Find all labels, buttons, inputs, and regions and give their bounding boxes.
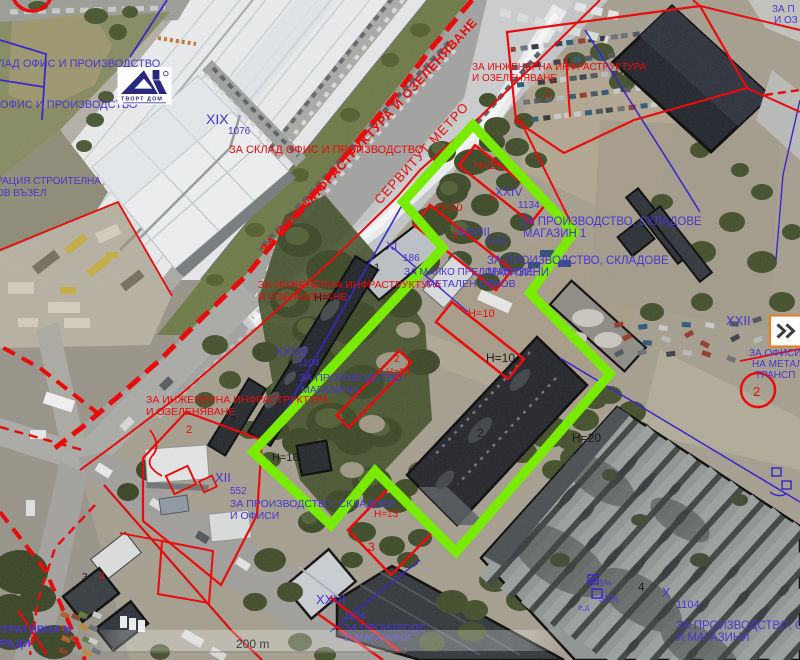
- svg-text:Н=10: Н=10: [486, 351, 515, 365]
- svg-text:XXVIII: XXVIII: [456, 225, 490, 239]
- svg-text:1: 1: [374, 262, 380, 274]
- svg-text:И ОЗЕЛЕНЯВАНЕ: И ОЗЕЛЕНЯВАНЕ: [146, 406, 235, 418]
- svg-text:ОВ ВЪЗЕЛ: ОВ ВЪЗЕЛ: [0, 188, 47, 199]
- svg-text:МАГАЗИНИ: МАГАЗИНИ: [487, 267, 549, 279]
- svg-text:XXIV: XXIV: [495, 185, 522, 199]
- svg-text:186: 186: [403, 253, 420, 264]
- svg-text:2: 2: [394, 354, 400, 365]
- svg-text:2: 2: [186, 424, 192, 436]
- svg-text:Н=20: Н=20: [572, 431, 601, 445]
- svg-text:ОФИС И ПРОИЗВОДСТВО: ОФИС И ПРОИЗВОДСТВО: [0, 99, 138, 111]
- svg-text:1104: 1104: [298, 358, 320, 369]
- svg-text:Н=8: Н=8: [314, 292, 335, 304]
- svg-text:ТВОРТ ДОМ: ТВОРТ ДОМ: [121, 97, 163, 103]
- svg-text:МАГАЗИН 1: МАГАЗИН 1: [523, 228, 586, 240]
- svg-text:1076: 1076: [228, 126, 251, 137]
- svg-text:XXII: XXII: [726, 313, 751, 328]
- svg-text:XII: XII: [215, 470, 231, 485]
- svg-text:3: 3: [489, 192, 495, 203]
- svg-text:3: 3: [368, 540, 375, 554]
- svg-text:Н=13: Н=13: [374, 509, 399, 520]
- svg-text:552: 552: [230, 486, 247, 497]
- svg-text:МЕТАЛЕН ОБКОВ: МЕТАЛЕН ОБКОВ: [426, 278, 516, 290]
- svg-text:XXVII: XXVII: [275, 345, 307, 359]
- svg-text:1: 1: [516, 114, 522, 125]
- svg-text:XXVI: XXVI: [316, 592, 346, 607]
- svg-text:ЗА ИНЖЕНЕРНА ИНФРАСТРУКТУРА: ЗА ИНЖЕНЕРНА ИНФРАСТРУКТУРА: [258, 279, 441, 291]
- svg-text:2: 2: [230, 415, 236, 426]
- svg-text:4: 4: [638, 580, 645, 594]
- svg-text:Н=10: Н=10: [386, 367, 411, 378]
- svg-text:ЗА ПРОИЗВОДСТВО, СКЛАДОВЕ: ЗА ПРОИЗВОДСТВО, СКЛАДОВЕ: [520, 216, 702, 228]
- svg-text:3: 3: [99, 571, 105, 582]
- svg-text:Н=10: Н=10: [436, 202, 463, 214]
- svg-text:1104: 1104: [676, 599, 700, 611]
- svg-text:ЗА ИНЖЕНЕРНА ИНФРАСТРУКТУРА: ЗА ИНЖЕНЕРНА ИНФРАСТРУКТУРА: [472, 62, 647, 73]
- svg-text:НА МЕТАЛ: НА МЕТАЛ: [752, 359, 800, 370]
- svg-text:ЗА ОФИСИ: ЗА ОФИСИ: [749, 348, 800, 359]
- svg-text:ЗА П: ЗА П: [772, 4, 795, 15]
- svg-text:5%: 5%: [600, 579, 612, 588]
- svg-text:ЗА ПРОИЗВОДСТВО, СКЛАДОВЕ: ЗА ПРОИЗВОДСТВО, СКЛАДОВЕ: [230, 498, 396, 510]
- svg-text:3: 3: [82, 572, 88, 583]
- svg-text:X: X: [662, 585, 671, 600]
- svg-text:Н=16: Н=16: [272, 452, 299, 464]
- svg-text:МАГАЗИНИ: МАГАЗИНИ: [301, 384, 358, 396]
- svg-text:2: 2: [753, 384, 760, 399]
- svg-text:ГРАДИ: ГРАДИ: [0, 638, 31, 650]
- svg-text:XIX: XIX: [206, 111, 229, 127]
- svg-text:3: 3: [452, 231, 458, 242]
- svg-text:И МАГАЗИНИ: И МАГАЗИНИ: [676, 632, 750, 644]
- svg-text:ЗА СКЛАД ОФИС И ПРОИЗВОДСТВО: ЗА СКЛАД ОФИС И ПРОИЗВОДСТВО: [229, 144, 424, 156]
- svg-text:1: 1: [545, 89, 551, 100]
- svg-text:1134: 1134: [518, 200, 540, 211]
- svg-text:И ОЗ: И ОЗ: [774, 15, 798, 26]
- svg-text:1104: 1104: [344, 611, 366, 622]
- svg-text:И ОЗЕЛЕНЯВАНЕ: И ОЗЕЛЕНЯВАНЕ: [472, 73, 557, 84]
- svg-text:2: 2: [477, 426, 484, 440]
- svg-text:Н=10: Н=10: [474, 160, 501, 172]
- svg-text:XI: XI: [386, 239, 397, 253]
- svg-text:ЗА ПРОИЗВОДСТВО, СКЛАДОВЕ: ЗА ПРОИЗВОДСТВО, СКЛАДОВЕ: [487, 255, 669, 267]
- svg-text:СТРАТИВНА И: СТРАТИВНА И: [0, 624, 72, 636]
- svg-text:И ОФИСИ: И ОФИСИ: [230, 510, 279, 522]
- svg-text:ТРАНСП: ТРАНСП: [755, 370, 795, 381]
- svg-text:Н=10: Н=10: [468, 308, 495, 320]
- svg-text:е,д: е,д: [578, 603, 590, 612]
- svg-text:200 m: 200 m: [236, 637, 269, 651]
- svg-text:РАЦИЯ СТРОИТЕЛНА: РАЦИЯ СТРОИТЕЛНА: [0, 176, 101, 187]
- svg-text:1104: 1104: [486, 236, 508, 247]
- svg-text:ЗА ПРОИЗВОДСТВО, СК: ЗА ПРОИЗВОДСТВО, СК: [676, 620, 800, 632]
